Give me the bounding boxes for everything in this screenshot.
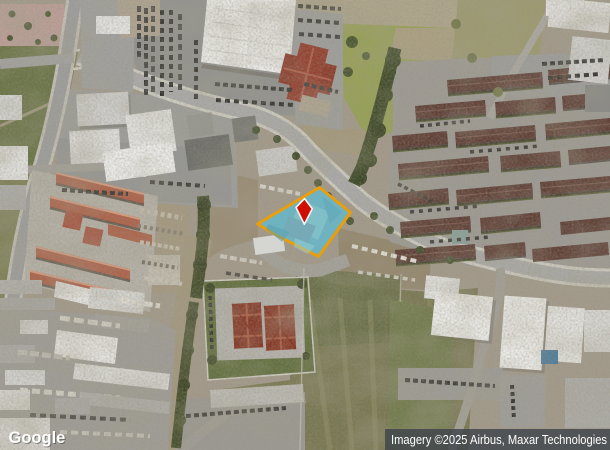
svg-text:Google: Google (9, 429, 66, 447)
svg-text:Imagery ©2025 Airbus, Maxar Te: Imagery ©2025 Airbus, Maxar Technologies (391, 432, 607, 447)
